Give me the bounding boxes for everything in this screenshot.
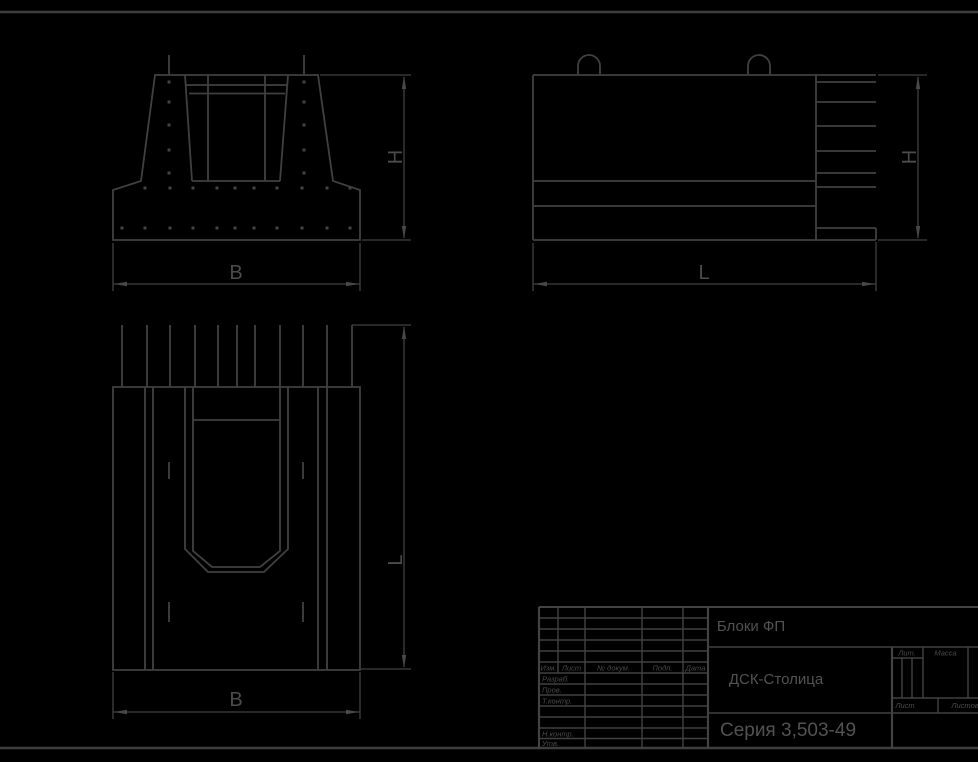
tb-col-dokum: № докум.	[597, 664, 630, 673]
tb-organization: ДСК-Столица	[729, 671, 824, 688]
front-rebar-dots	[121, 81, 352, 230]
tb-row-tkontr: Т.контр.	[542, 697, 572, 706]
side-dim-length: L	[533, 242, 876, 291]
tb-label-sheets: Листов	[950, 701, 978, 710]
tb-col-izm: Изм.	[541, 664, 557, 673]
technical-drawing: H B H L	[0, 0, 978, 762]
front-dim-width: B	[113, 243, 360, 291]
tb-col-data: Дата	[685, 664, 706, 673]
plan-length-label: L	[385, 554, 407, 565]
plan-channel	[185, 387, 288, 572]
plan-outline	[113, 387, 360, 670]
plan-dim-width: B	[113, 672, 360, 719]
side-height-label: H	[899, 150, 921, 164]
title-block: Изм. Лист № докум. Подп. Дата Разраб. Пр…	[539, 607, 978, 748]
side-length-label: L	[698, 262, 709, 284]
front-loop-wires	[169, 55, 304, 75]
side-lifting-loops	[578, 55, 770, 75]
plan-top-stubs	[122, 325, 352, 387]
tb-label-lit: Лит.	[897, 649, 916, 658]
side-dim-height: H	[878, 75, 927, 240]
side-outline	[533, 75, 876, 240]
tb-col-podp: Подп.	[653, 664, 673, 673]
front-height-label: H	[385, 150, 407, 164]
tb-product-title: Блоки ФП	[717, 618, 785, 635]
tb-row-nkontr: Н.контр.	[542, 730, 574, 739]
front-channel-lines	[185, 75, 288, 181]
side-taper-steps	[816, 82, 876, 240]
plan-column-edges	[145, 387, 327, 670]
tb-row-razrab: Разраб.	[542, 675, 569, 684]
tb-col-list: Лист	[561, 664, 581, 673]
tb-series: Серия 3,503-49	[720, 720, 856, 741]
front-dim-height: H	[320, 75, 411, 240]
side-strip-lines	[533, 181, 816, 206]
front-width-label: B	[229, 262, 242, 284]
front-view: H B	[113, 55, 411, 291]
title-block-columns	[558, 607, 683, 748]
plan-width-label: B	[229, 689, 242, 711]
plan-view: B L	[113, 325, 411, 719]
tb-row-utv: Утв.	[541, 739, 559, 748]
drawing-sheet: H B H L	[0, 0, 978, 762]
front-outline	[113, 75, 360, 240]
tb-row-prov: Пров.	[542, 686, 562, 695]
plan-tick-marks	[169, 462, 303, 622]
tb-label-mass: Масса	[934, 649, 956, 658]
tb-label-sheet: Лист	[894, 701, 914, 710]
side-view: H L	[533, 55, 927, 291]
